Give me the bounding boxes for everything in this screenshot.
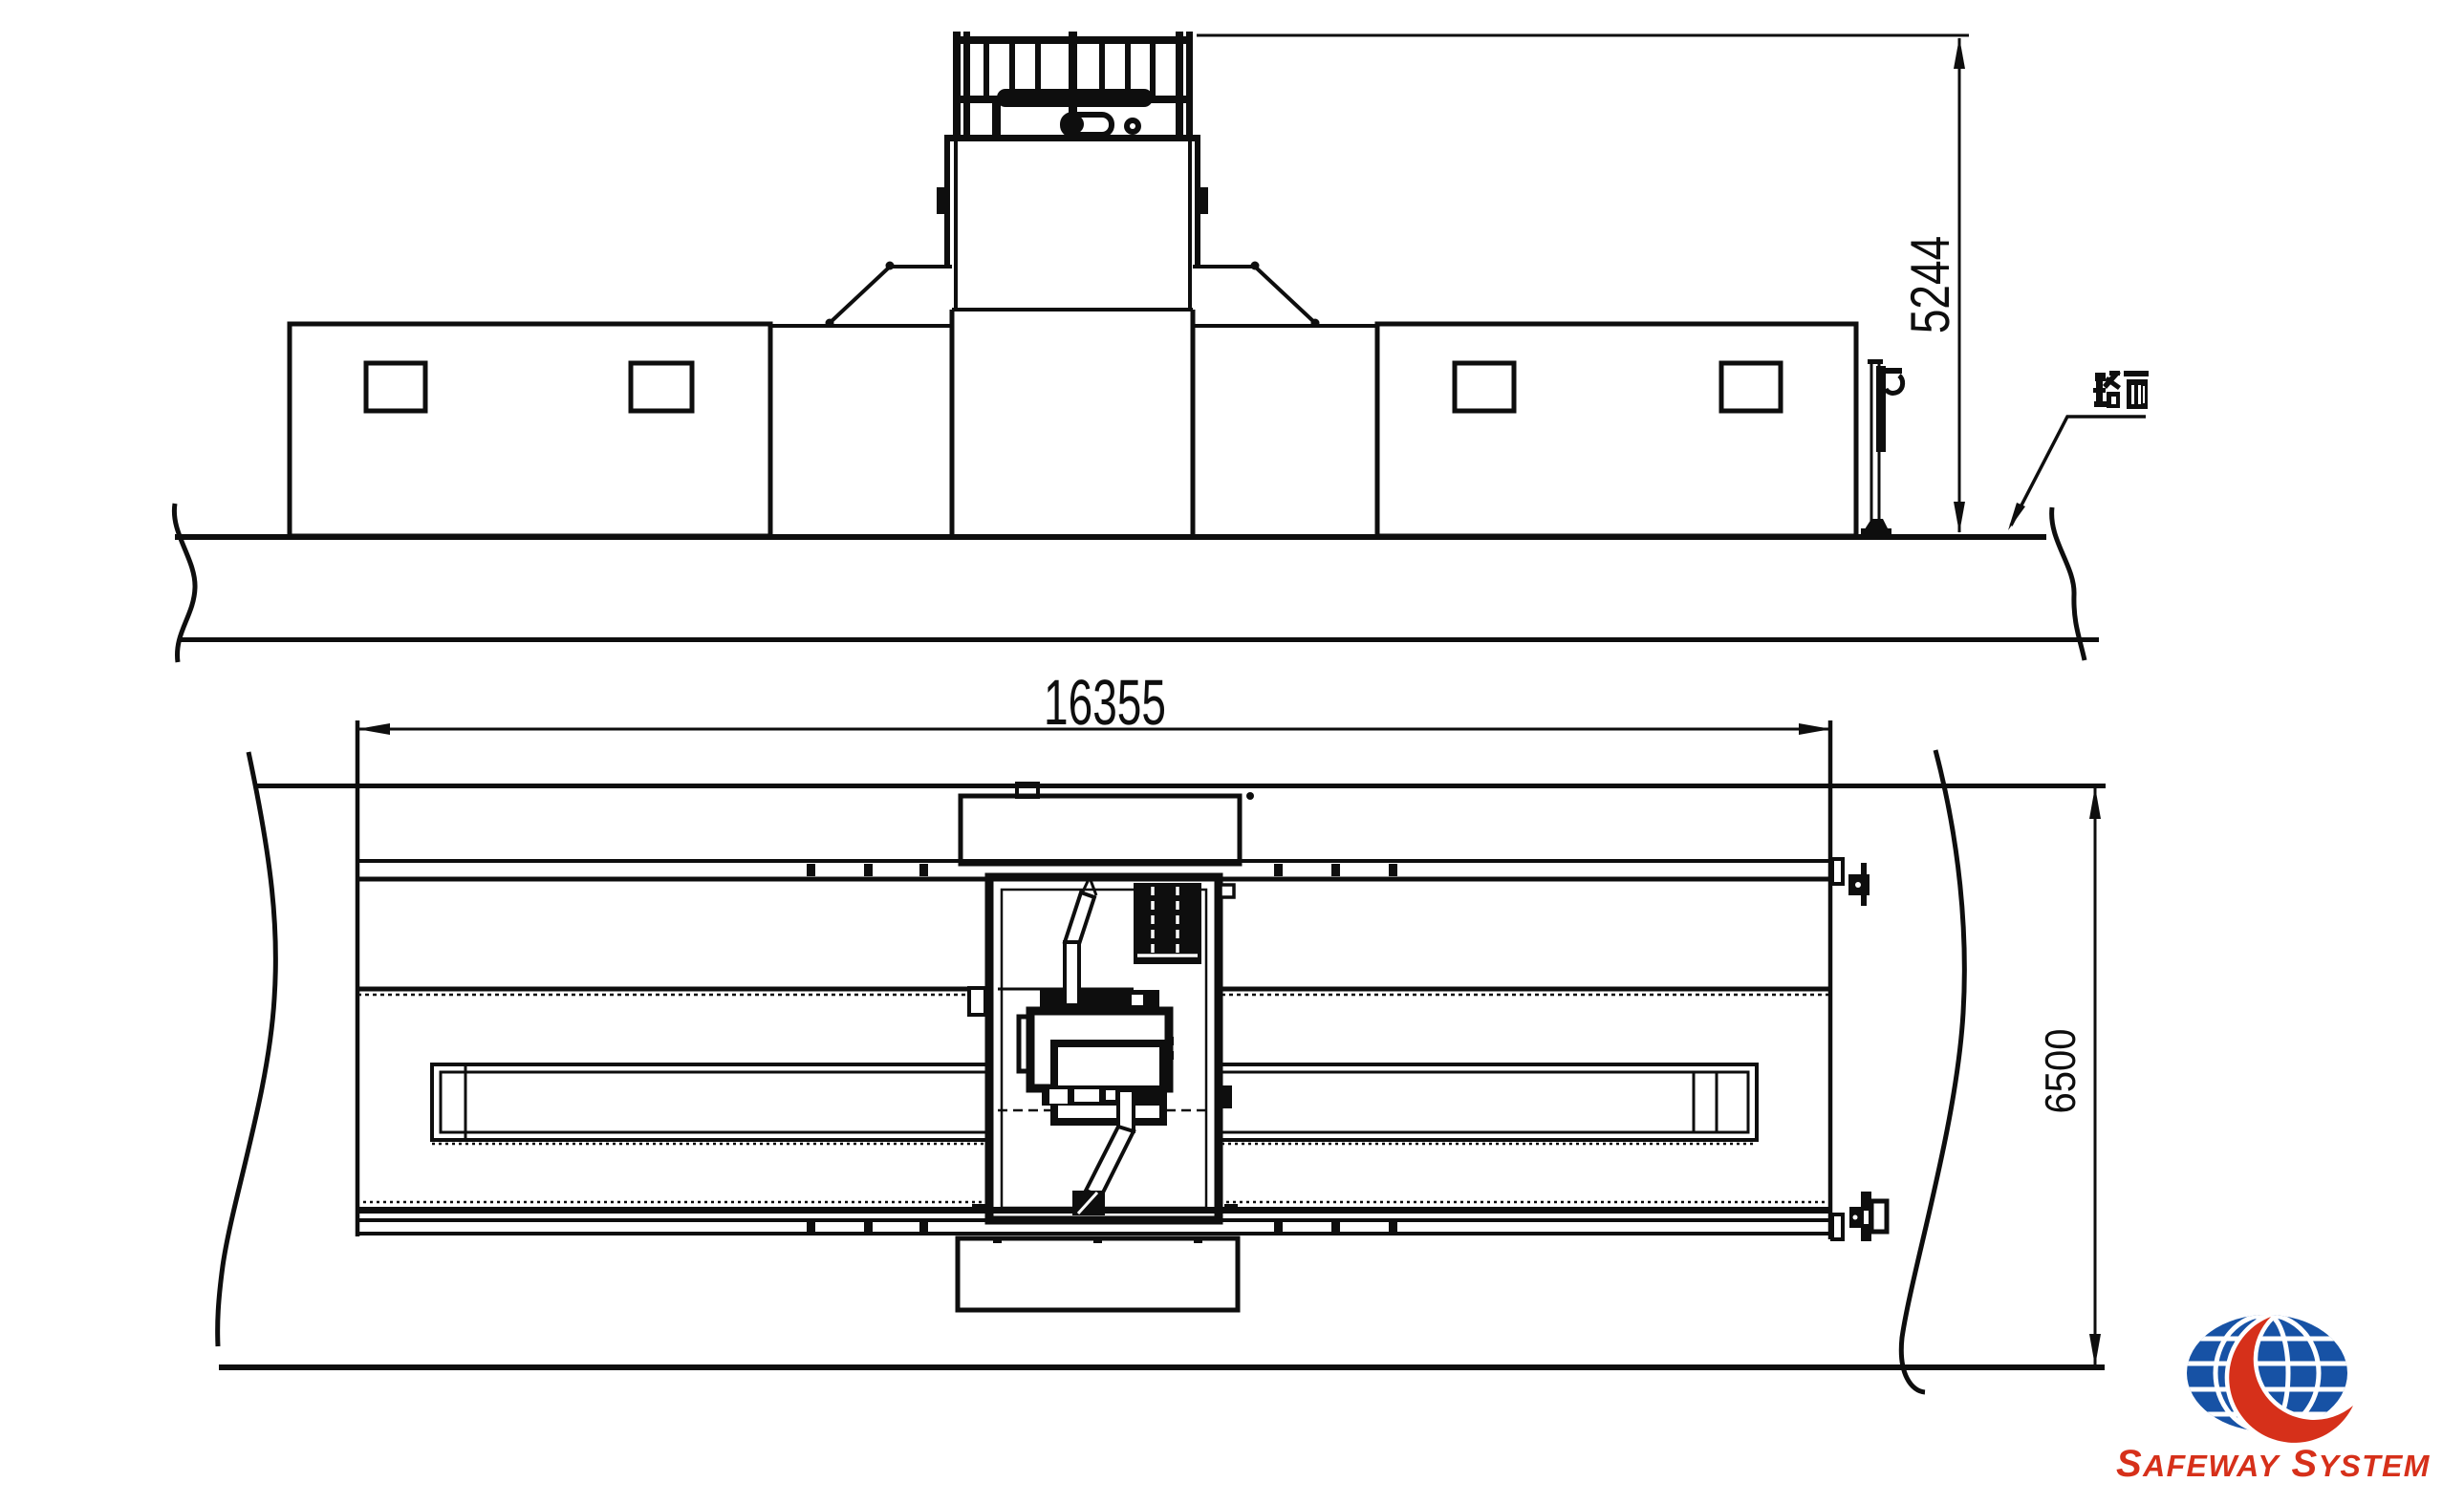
svg-text:5244: 5244 [1899, 236, 1961, 333]
svg-text:SAFEWAY SYSTEM: SAFEWAY SYSTEM [2116, 1443, 2431, 1485]
svg-text:6500: 6500 [2038, 1029, 2085, 1114]
svg-text:16355: 16355 [1044, 666, 1166, 739]
